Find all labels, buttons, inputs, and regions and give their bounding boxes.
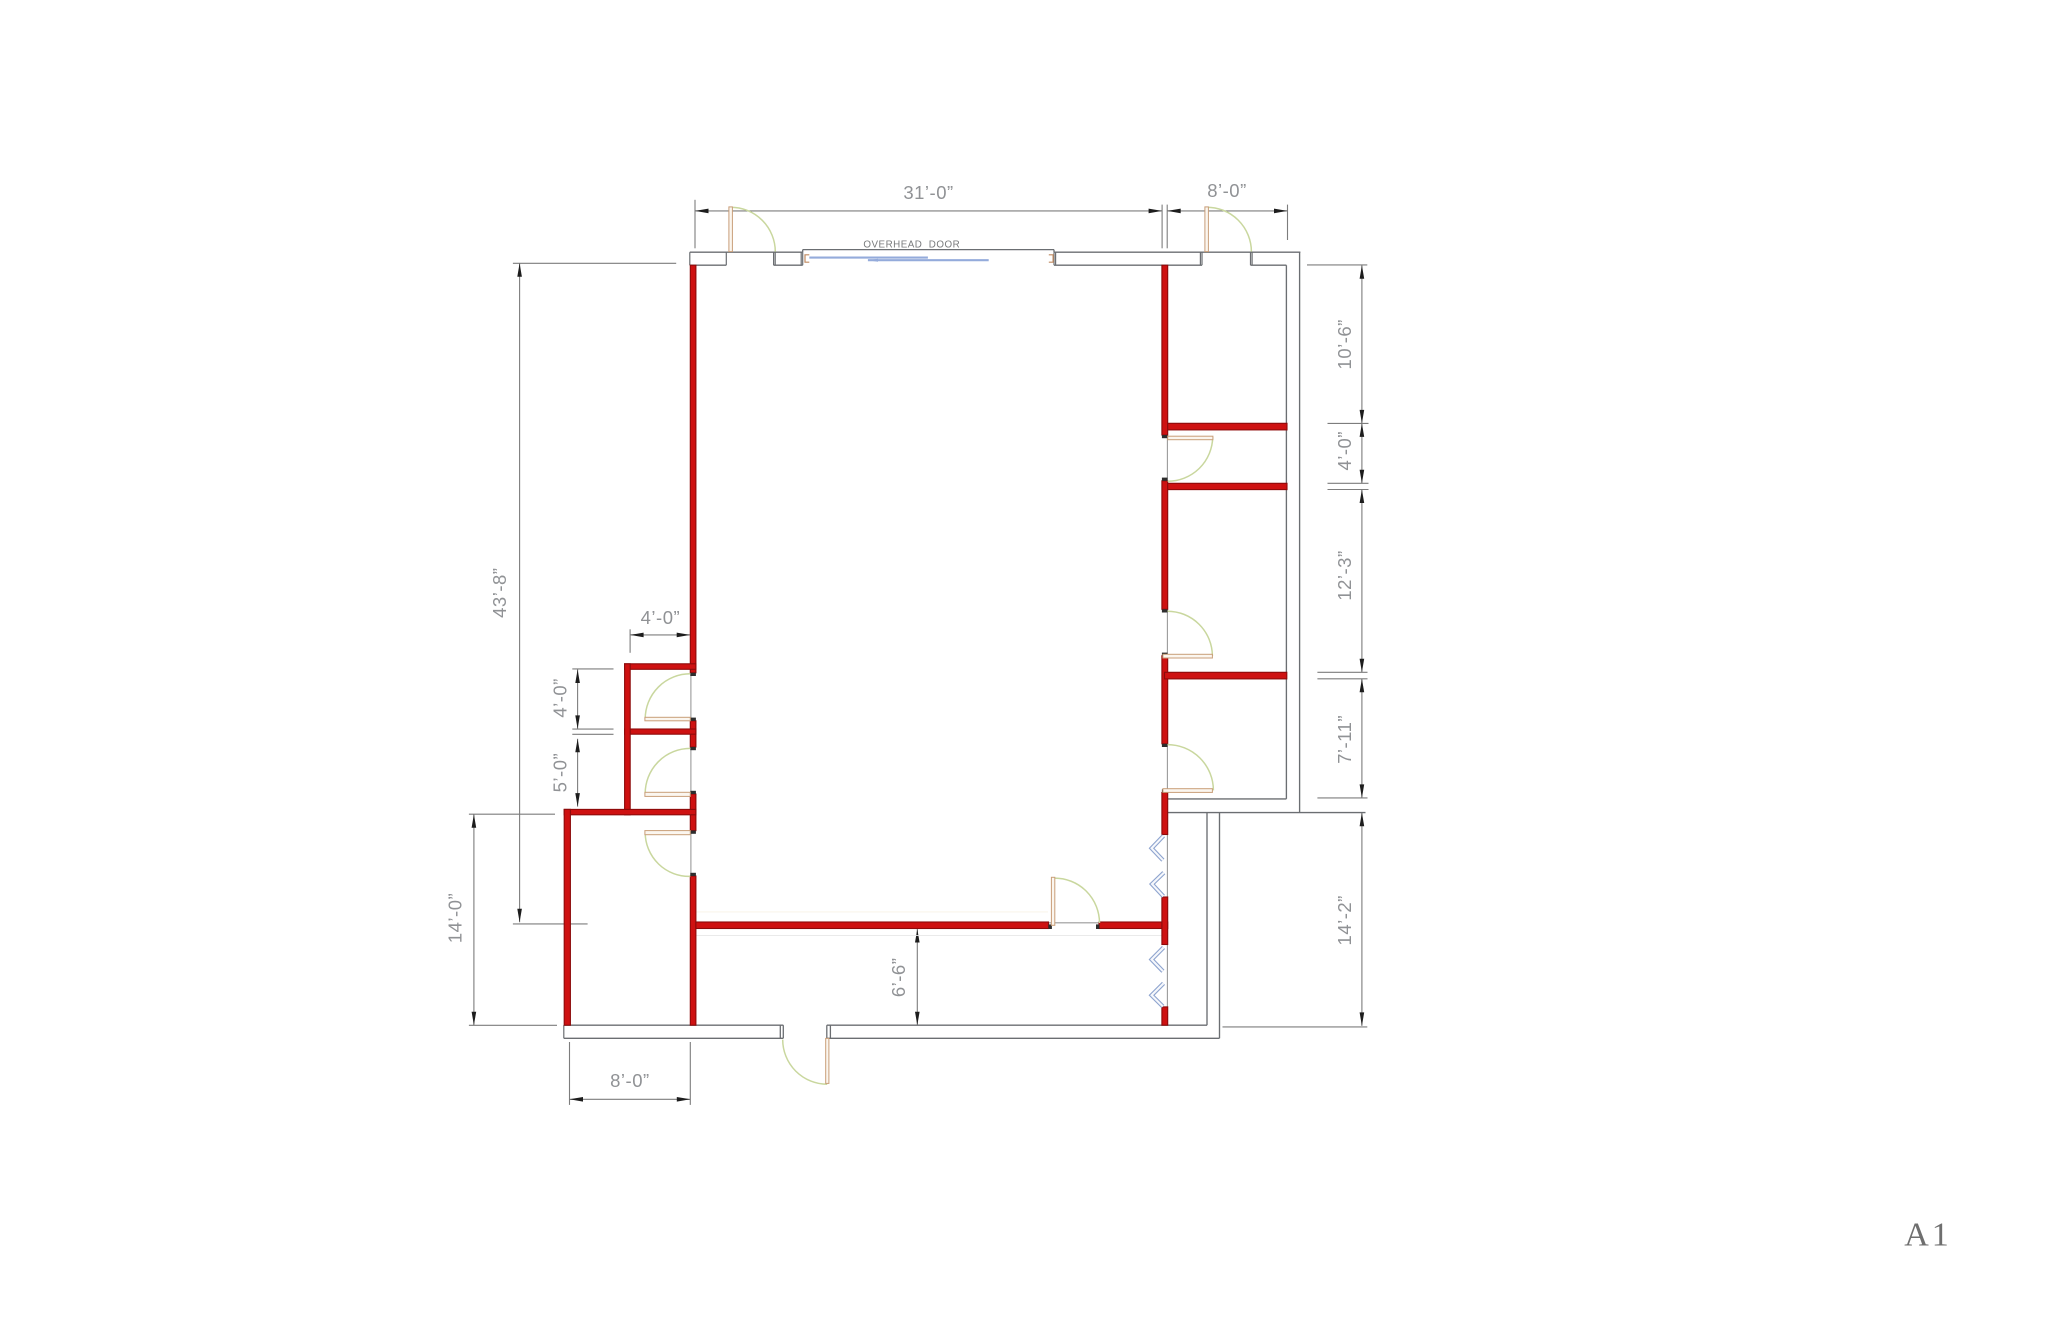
svg-text:5’-0”: 5’-0” — [550, 753, 571, 793]
svg-text:7’-11”: 7’-11” — [1334, 715, 1355, 764]
svg-text:12’-3”: 12’-3” — [1334, 550, 1355, 600]
svg-text:OVERHEAD DOOR: OVERHEAD DOOR — [863, 239, 960, 250]
svg-text:4’-0”: 4’-0” — [641, 607, 681, 628]
svg-text:10’-6”: 10’-6” — [1334, 319, 1355, 369]
svg-text:6’-6”: 6’-6” — [888, 958, 909, 998]
svg-text:31’-0”: 31’-0” — [903, 182, 953, 203]
svg-text:8’-0”: 8’-0” — [1207, 180, 1247, 201]
svg-text:14’-0”: 14’-0” — [445, 893, 466, 943]
svg-text:4’-0”: 4’-0” — [550, 678, 571, 718]
svg-text:8’-0”: 8’-0” — [610, 1070, 650, 1091]
svg-text:A1: A1 — [1904, 1217, 1952, 1254]
svg-text:4’-0”: 4’-0” — [1334, 431, 1355, 471]
svg-text:43’-8”: 43’-8” — [489, 568, 510, 618]
svg-text:14’-2”: 14’-2” — [1334, 895, 1355, 945]
